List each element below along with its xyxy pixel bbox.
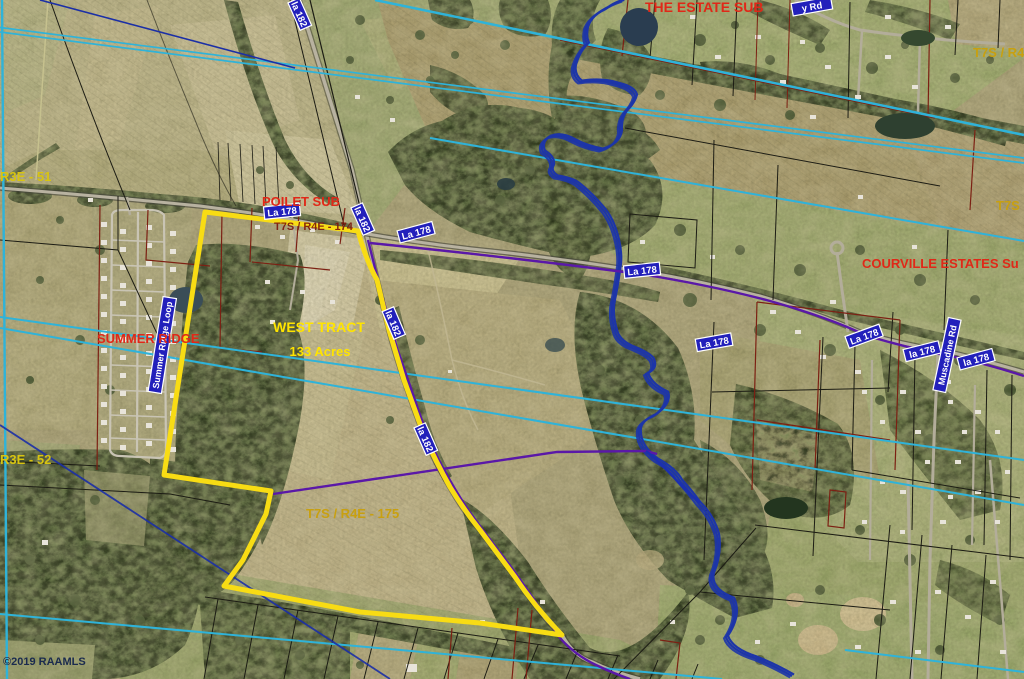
svg-text:T7S / R4E - 175: T7S / R4E - 175: [306, 506, 399, 521]
svg-text:©2019 RAAMLS: ©2019 RAAMLS: [3, 656, 86, 668]
svg-text:133 Acres: 133 Acres: [290, 344, 351, 359]
svg-text:COURVILLE ESTATES Su: COURVILLE ESTATES Su: [862, 256, 1019, 271]
svg-text:WEST TRACT: WEST TRACT: [273, 319, 365, 335]
svg-text:POILET SUB: POILET SUB: [262, 194, 340, 209]
svg-text:T7S: T7S: [996, 198, 1020, 213]
svg-text:THE ESTATE SUB: THE ESTATE SUB: [645, 0, 764, 15]
svg-text:T7S / R4E: T7S / R4E: [973, 45, 1024, 60]
svg-text:R3E - 52: R3E - 52: [0, 452, 51, 467]
svg-text:T7S / R4E - 174: T7S / R4E - 174: [274, 221, 354, 233]
svg-text:SUMMER RIDGE: SUMMER RIDGE: [97, 331, 200, 346]
svg-text:R3E - 51: R3E - 51: [0, 169, 51, 184]
